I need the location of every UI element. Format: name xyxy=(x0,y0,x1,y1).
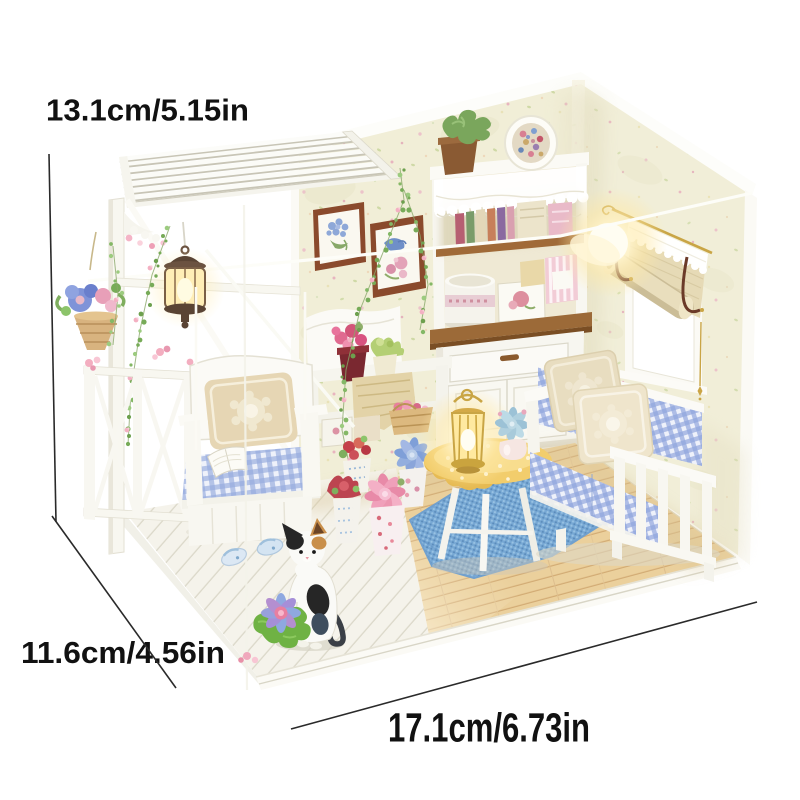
svg-text:11.6cm/4.56in: 11.6cm/4.56in xyxy=(21,635,225,670)
svg-text:13.1cm/5.15in: 13.1cm/5.15in xyxy=(46,93,249,128)
svg-text:17.1cm/6.73in: 17.1cm/6.73in xyxy=(388,705,590,751)
